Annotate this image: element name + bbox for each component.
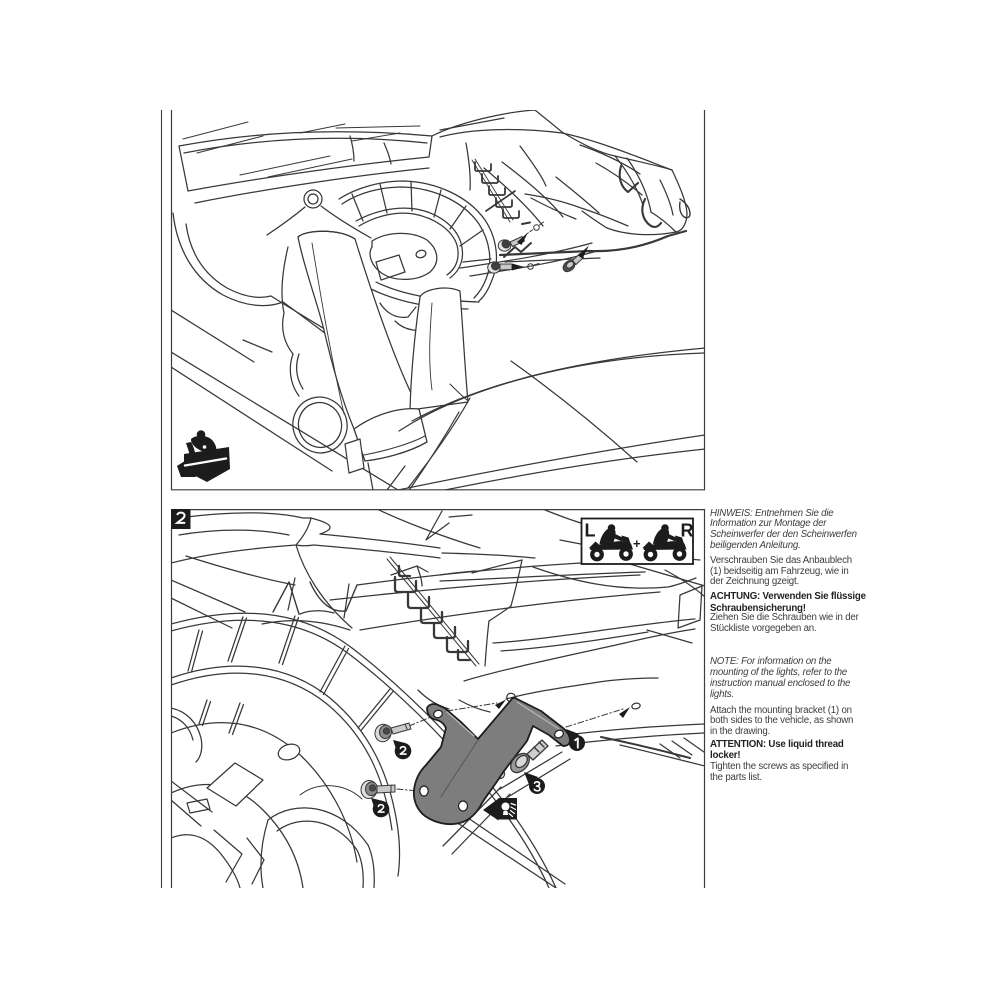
svg-text:R: R <box>681 521 694 541</box>
svg-text:+: + <box>633 536 641 551</box>
svg-text:L: L <box>585 521 596 541</box>
